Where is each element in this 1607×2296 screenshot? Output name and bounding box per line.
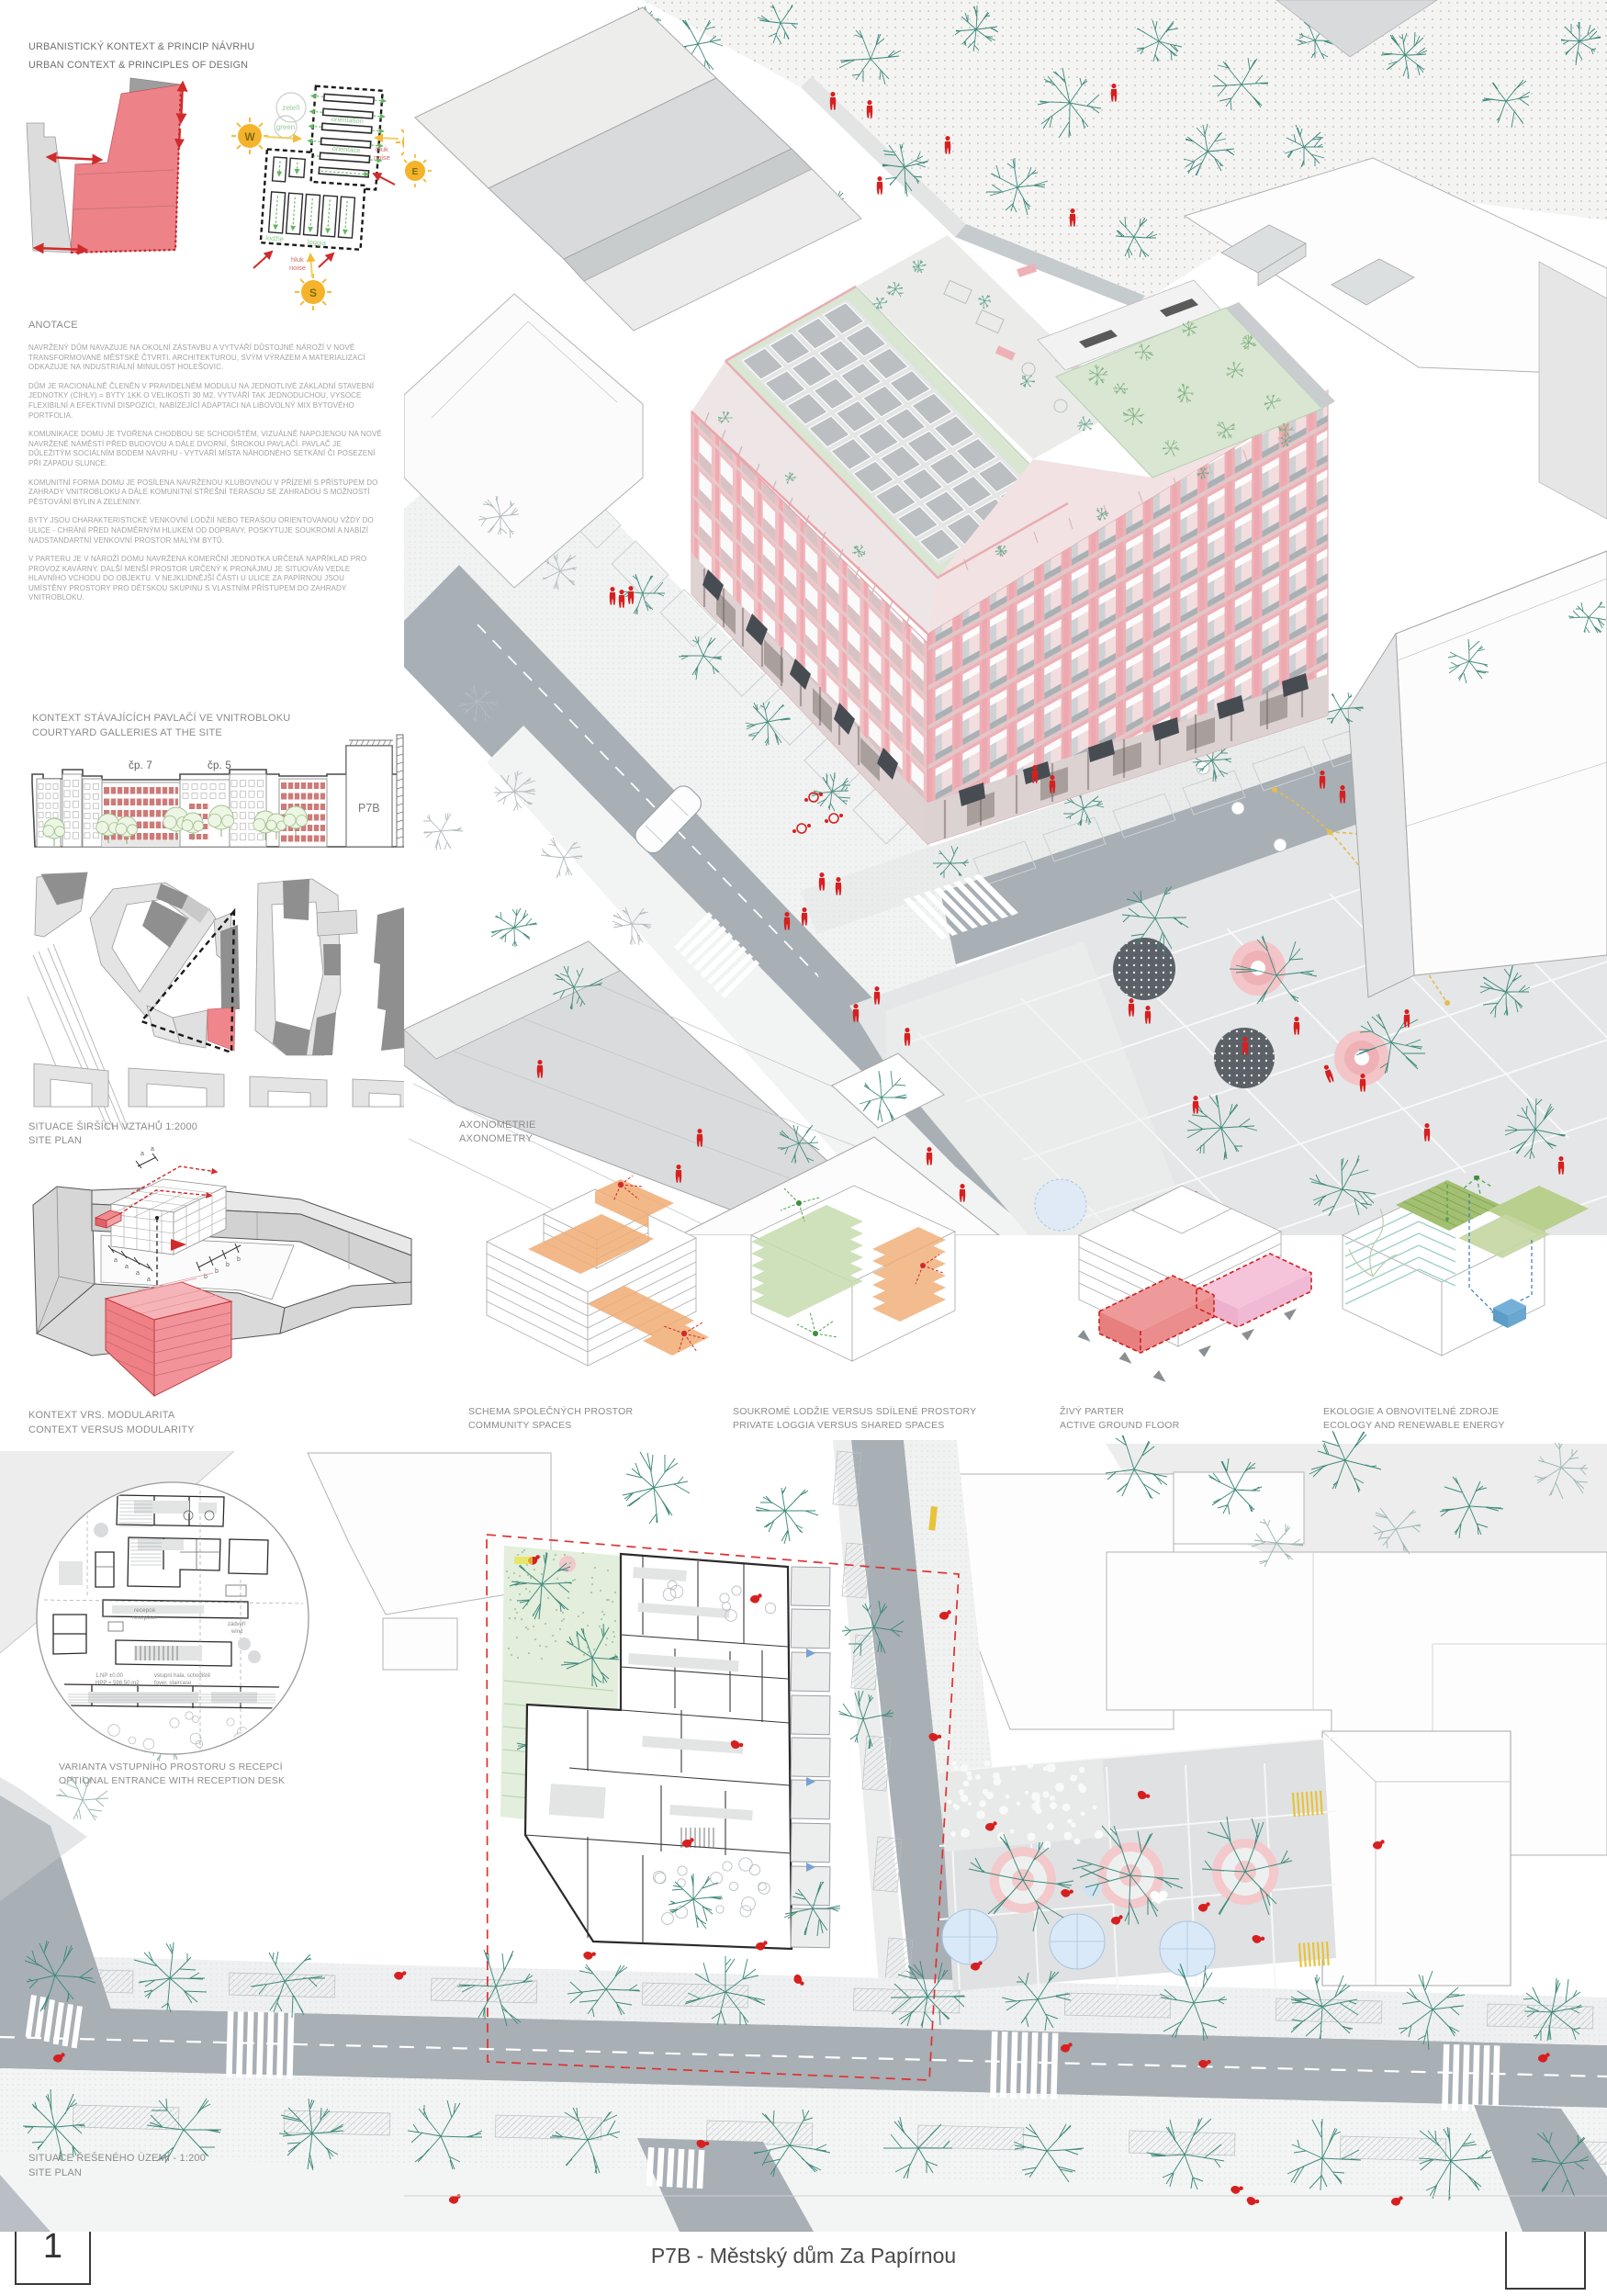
svg-text:a: a — [125, 1264, 129, 1270]
svg-text:S: S — [309, 287, 317, 299]
svg-text:W: W — [244, 130, 255, 143]
svg-text:hluk: hluk — [376, 145, 388, 153]
svg-text:loggia: loggia — [308, 238, 327, 247]
svg-text:P7B: P7B — [358, 802, 380, 815]
svg-text:reception: reception — [132, 1615, 157, 1621]
svg-text:foyer, staircase: foyer, staircase — [154, 1681, 192, 1686]
svg-text:noise: noise — [289, 264, 306, 272]
svg-text:b: b — [215, 1268, 219, 1275]
svg-text:HPP = 598,50 m2: HPP = 598,50 m2 — [96, 1681, 140, 1686]
svg-text:b: b — [237, 1256, 241, 1263]
svg-text:a: a — [114, 1257, 118, 1264]
svg-text:recepce: recepce — [134, 1607, 156, 1614]
svg-text:lodžie: lodžie — [265, 234, 284, 243]
svg-text:green: green — [276, 123, 295, 131]
svg-text:zeleň: zeleň — [282, 104, 299, 112]
svg-text:a: a — [140, 1151, 144, 1157]
svg-text:noise: noise — [374, 153, 390, 162]
svg-text:1.NP ±0,00: 1.NP ±0,00 — [96, 1673, 124, 1679]
svg-text:a: a — [136, 1270, 140, 1277]
svg-text:a: a — [147, 1277, 151, 1283]
svg-text:hluk: hluk — [291, 255, 304, 264]
svg-text:E: E — [412, 167, 419, 177]
svg-text:wind: wind — [230, 1629, 242, 1635]
svg-text:vstupní hala, schodiště: vstupní hala, schodiště — [154, 1673, 211, 1679]
svg-text:zádveří: zádveří — [228, 1622, 246, 1627]
svg-text:b: b — [226, 1262, 230, 1268]
